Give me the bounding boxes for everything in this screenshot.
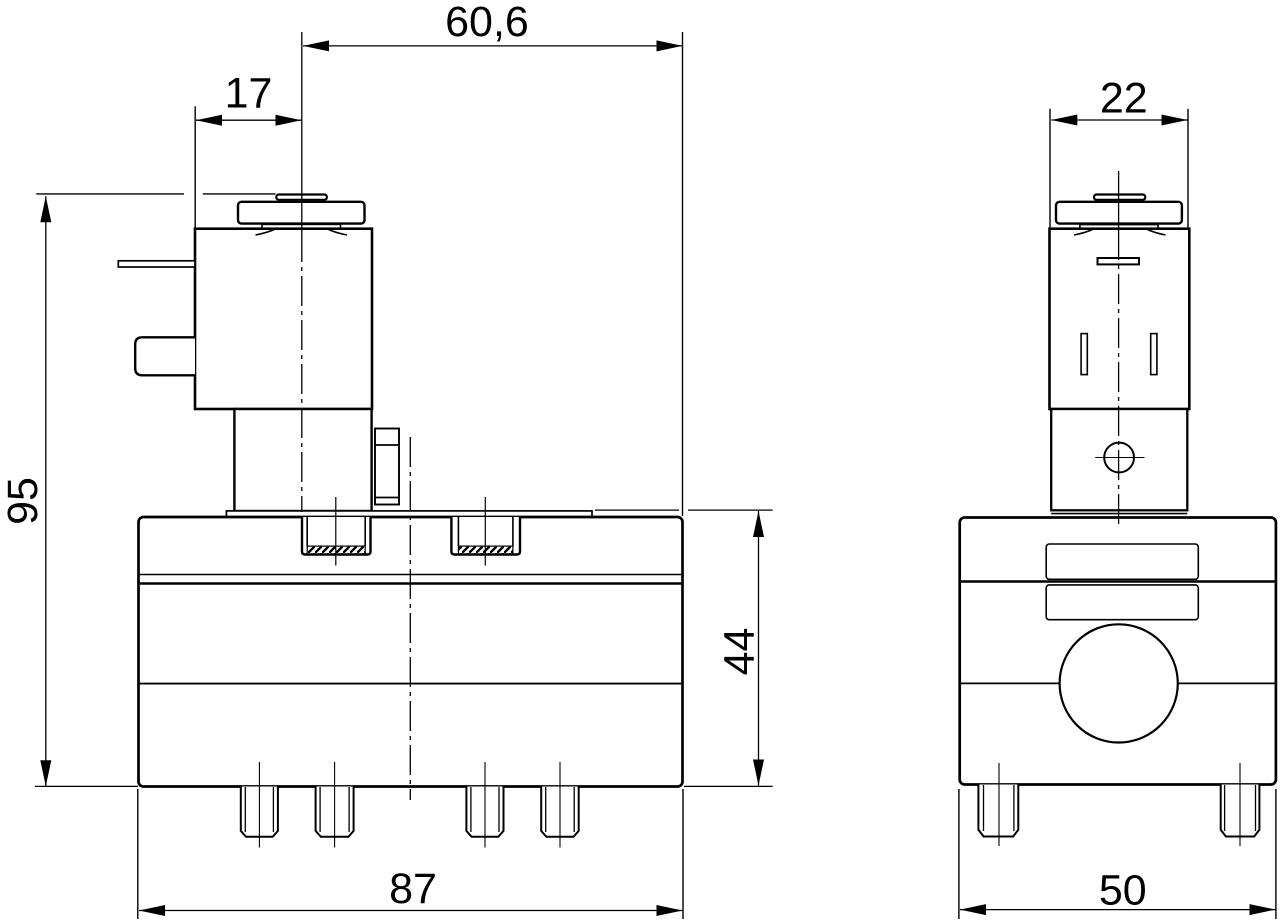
svg-text:87: 87 [389,865,437,913]
svg-text:95: 95 [0,477,47,525]
svg-text:50: 50 [1099,867,1147,915]
svg-text:22: 22 [1100,75,1148,123]
svg-text:44: 44 [716,628,764,676]
svg-text:60,6: 60,6 [445,0,529,46]
svg-text:17: 17 [225,70,273,118]
